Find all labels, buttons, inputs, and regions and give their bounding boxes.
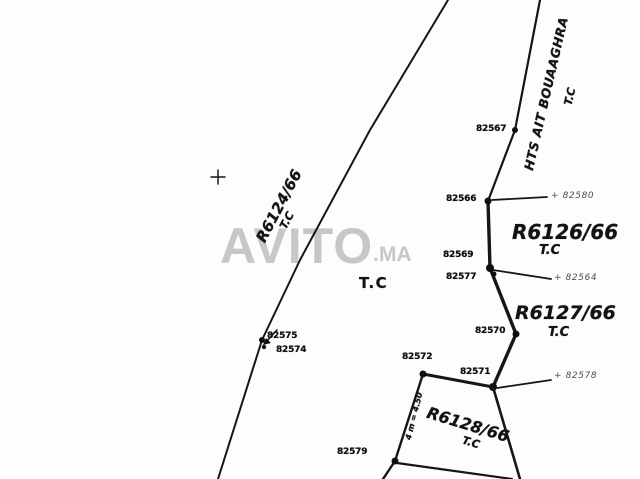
point-label-82572: 82572 (402, 352, 432, 362)
parcel-title-r6127: R6127/66 (515, 302, 616, 324)
leader-82580 (492, 197, 547, 200)
leader-82578 (497, 380, 551, 388)
cadastral-plan: AVITO.MA (0, 0, 640, 479)
point-label-82571: 82571 (460, 367, 490, 377)
ref-point-label-82580: + 82580 (551, 191, 594, 201)
point-label-82569: 82569 (443, 250, 473, 260)
grid-cross-icon (211, 170, 225, 184)
point-label-82579: 82579 (337, 447, 367, 457)
point-label-82566: 82566 (446, 194, 476, 204)
parcel-title-r6126: R6126/66 (512, 220, 618, 244)
point-label-82577: 82577 (446, 272, 476, 282)
parcel-tenure-r6126: T.C (539, 243, 560, 258)
area-tenure-label: T.C (359, 274, 388, 292)
ref-point-label-82564: + 82564 (554, 273, 597, 283)
point-label-82575: 82575 (267, 331, 297, 341)
point-label-82567: 82567 (476, 124, 506, 134)
line-r6128-south (397, 463, 512, 479)
point-label-82574: 82574 (276, 345, 306, 355)
leader-82564 (493, 270, 551, 279)
point-label-82570: 82570 (475, 326, 505, 336)
parcel-tenure-r6127: T.C (548, 325, 569, 340)
ref-point-label-82578: + 82578 (554, 371, 597, 381)
